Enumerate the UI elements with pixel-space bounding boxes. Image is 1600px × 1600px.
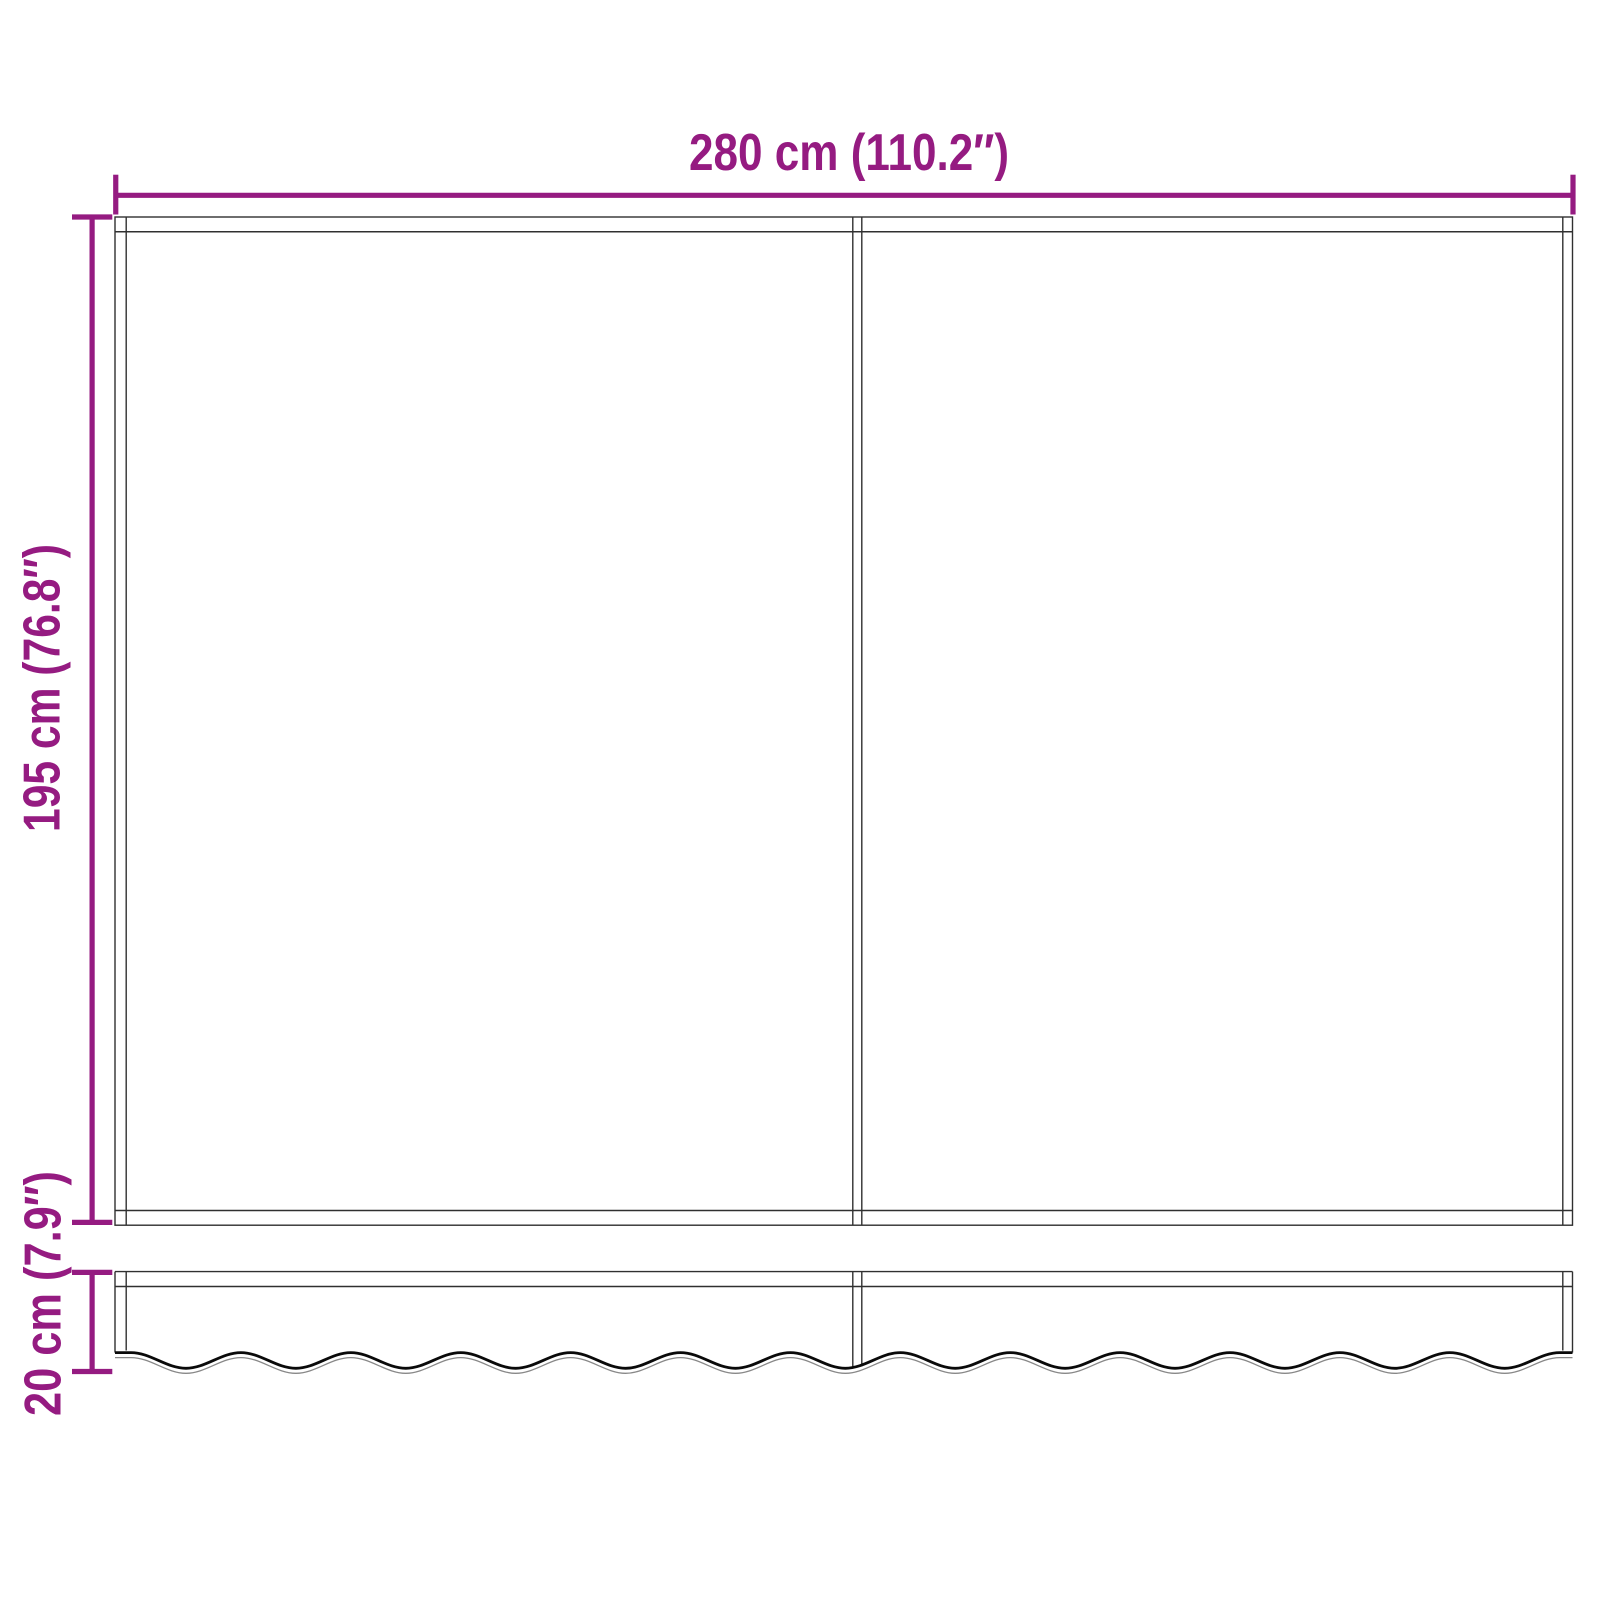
svg-text:195 cm (76.8″): 195 cm (76.8″) xyxy=(14,544,72,832)
svg-text:280 cm (110.2″): 280 cm (110.2″) xyxy=(689,124,1009,182)
svg-text:20 cm (7.9″): 20 cm (7.9″) xyxy=(15,1171,73,1416)
